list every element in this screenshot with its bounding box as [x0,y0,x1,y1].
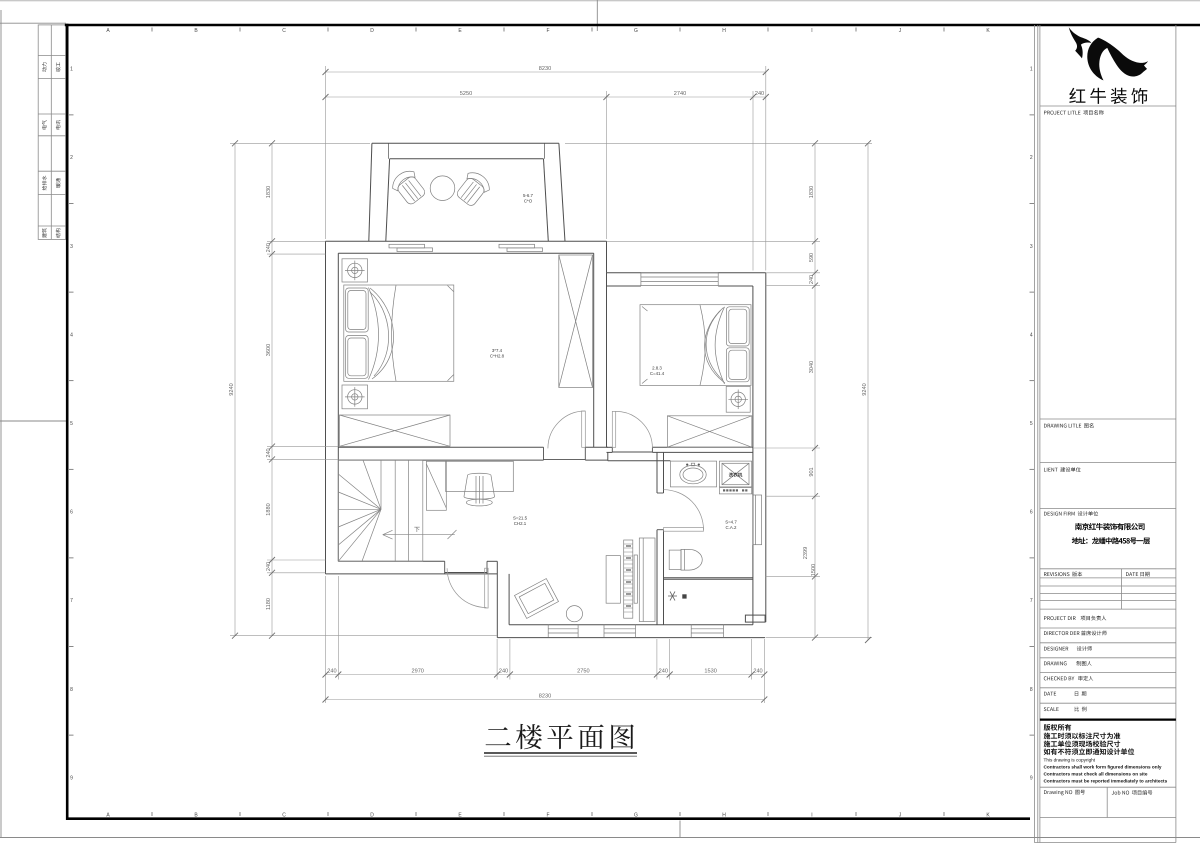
svg-text:G: G [634,28,638,34]
svg-text:1180: 1180 [266,598,272,610]
svg-text:5: 5 [70,421,73,427]
svg-text:8: 8 [70,687,73,693]
svg-text:Contractors shall work form fi: Contractors shall work form figured dime… [1044,764,1162,769]
svg-text:5: 5 [1030,421,1033,427]
svg-text:8230: 8230 [539,66,551,72]
svg-text:C*O: C*O [524,198,533,203]
svg-text:3: 3 [70,244,73,250]
svg-text:3: 3 [1030,244,1033,250]
svg-text:2740: 2740 [674,91,686,97]
svg-text:590: 590 [809,253,815,262]
svg-text:1830: 1830 [266,186,272,198]
svg-text:C: C [282,28,286,34]
svg-text:1880: 1880 [266,503,272,515]
svg-text:5250: 5250 [460,91,472,97]
svg-text:1500: 1500 [811,564,817,576]
svg-text:240: 240 [266,562,272,571]
svg-text:3*7.4: 3*7.4 [492,348,503,353]
svg-text:240: 240 [809,275,815,284]
svg-text:F: F [546,28,549,34]
svg-text:9240: 9240 [229,383,235,395]
svg-text:C.A.2: C.A.2 [726,525,738,530]
svg-text:2399: 2399 [803,547,809,559]
svg-text:4: 4 [1030,332,1033,338]
svg-text:240: 240 [499,669,508,675]
svg-text:2750: 2750 [577,669,589,675]
svg-text:I: I [811,813,812,819]
svg-text:Contractors must be reported i: Contractors must be reported immediately… [1044,778,1168,783]
svg-text:3600: 3600 [266,344,272,356]
svg-text:7: 7 [70,598,73,604]
svg-text:8230: 8230 [539,694,551,700]
svg-text:9: 9 [70,775,73,781]
svg-text:1: 1 [1030,67,1033,73]
svg-text:2970: 2970 [411,669,423,675]
svg-text:2: 2 [70,155,73,161]
svg-text:D: D [370,813,374,819]
svg-text:G: G [634,813,638,819]
svg-text:CH2.1: CH2.1 [514,521,527,526]
svg-text:H: H [722,813,726,819]
svg-text:7: 7 [1030,598,1033,604]
svg-text:F: F [546,813,549,819]
svg-text:240: 240 [266,243,272,252]
svg-text:Contractors must check all dim: Contractors must check all dimensions on… [1044,771,1148,776]
svg-text:6: 6 [70,510,73,516]
svg-text:5-6.7: 5-6.7 [523,193,534,198]
svg-text:3040: 3040 [809,361,815,373]
svg-text:1530: 1530 [704,669,716,675]
svg-text:C: C [282,813,286,819]
svg-text:4: 4 [70,332,73,338]
svg-text:C=41.4: C=41.4 [650,371,665,376]
svg-text:2: 2 [1030,155,1033,161]
svg-text:6: 6 [1030,510,1033,516]
svg-text:240: 240 [327,669,336,675]
svg-text:D: D [370,28,374,34]
svg-text:240: 240 [659,669,668,675]
svg-text:240: 240 [753,669,762,675]
svg-text:S=21.5: S=21.5 [513,516,528,521]
svg-text:8: 8 [1030,687,1033,693]
svg-text:H: H [722,28,726,34]
svg-text:S=4.7: S=4.7 [725,520,737,525]
svg-text:240: 240 [266,448,272,457]
svg-text:901: 901 [809,467,815,476]
svg-text:2.8.3: 2.8.3 [652,366,662,371]
svg-text:I: I [811,28,812,34]
svg-text:240: 240 [755,91,764,97]
svg-text:C*H2.8: C*H2.8 [490,353,505,358]
svg-text:This drawing is copyright: This drawing is copyright [1044,757,1096,762]
svg-text:9240: 9240 [862,383,868,395]
svg-text:1: 1 [70,67,73,73]
svg-text:9: 9 [1030,775,1033,781]
svg-text:1830: 1830 [809,186,815,198]
